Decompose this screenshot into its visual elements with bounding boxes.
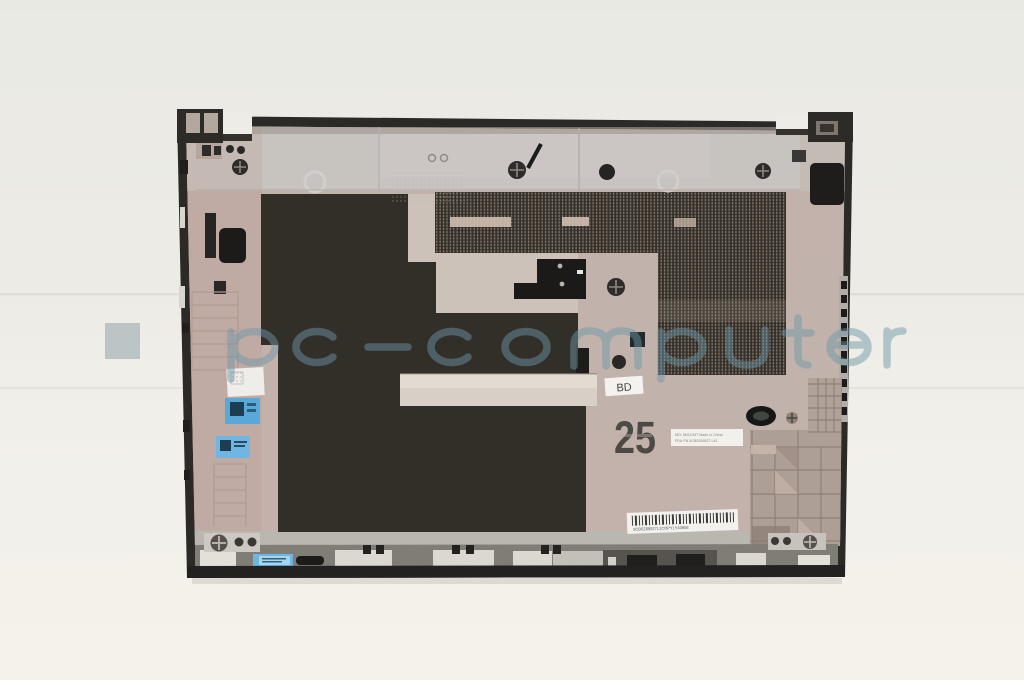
svg-text:MO: 5M11G97 Made in China: MO: 5M11G97 Made in China [675,433,722,437]
svg-text:FRU PN 5CB0Z69527 L#1: FRU PN 5CB0Z69527 L#1 [675,439,718,443]
svg-text:BD: BD [616,381,632,394]
svg-text:25: 25 [614,412,656,463]
